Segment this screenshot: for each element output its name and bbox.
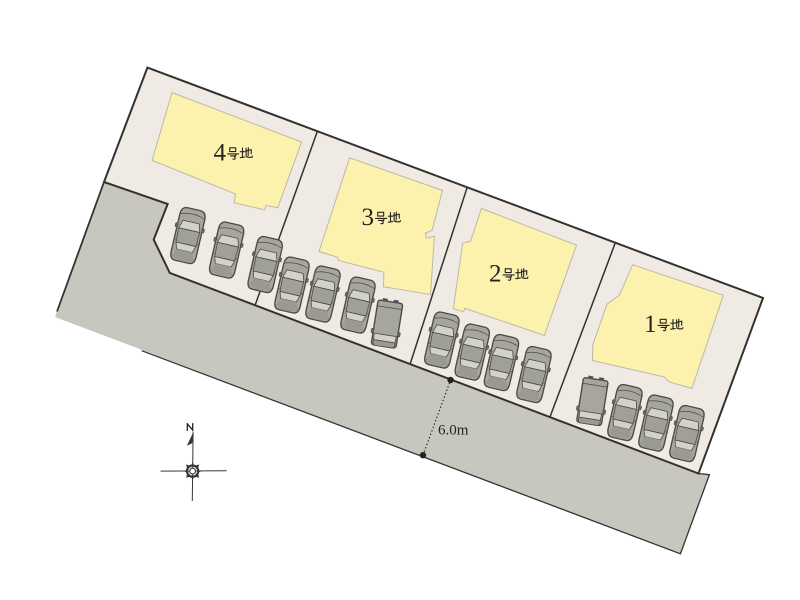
svg-text:2: 2 [489,261,502,288]
svg-text:6.0m: 6.0m [438,423,469,439]
svg-text:3: 3 [362,204,375,231]
svg-text:4: 4 [214,140,227,167]
svg-text:1: 1 [644,311,657,338]
